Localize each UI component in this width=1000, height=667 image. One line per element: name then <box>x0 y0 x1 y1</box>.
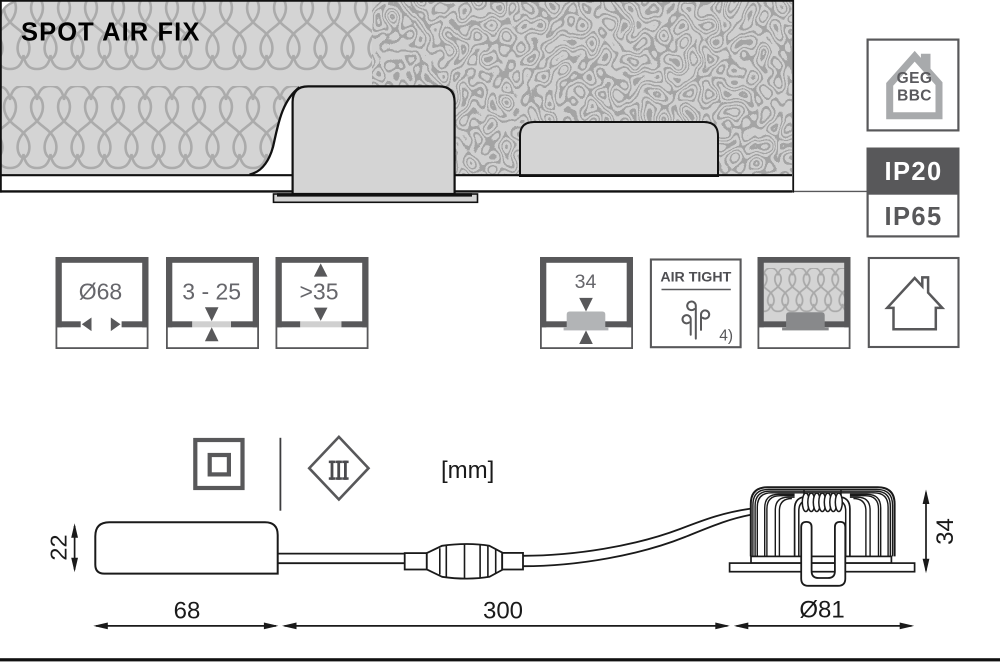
svg-text:SPOT AIR FIX: SPOT AIR FIX <box>21 19 200 47</box>
svg-text:BBC: BBC <box>897 87 932 104</box>
svg-text:300: 300 <box>483 598 523 625</box>
svg-text:3 - 25: 3 - 25 <box>182 279 241 305</box>
svg-text:4): 4) <box>719 327 733 344</box>
svg-text:GEG: GEG <box>897 70 933 87</box>
svg-text:68: 68 <box>174 598 201 625</box>
svg-text:Ø68: Ø68 <box>79 279 122 305</box>
svg-text:34: 34 <box>932 518 959 545</box>
svg-text:AIR TIGHT: AIR TIGHT <box>660 270 731 286</box>
svg-text:IP65: IP65 <box>884 203 942 231</box>
svg-text:34: 34 <box>575 271 597 293</box>
svg-text:Ø81: Ø81 <box>799 597 844 624</box>
svg-text:>35: >35 <box>299 279 338 305</box>
svg-text:[mm]: [mm] <box>441 457 494 484</box>
svg-text:IP20: IP20 <box>884 158 942 186</box>
svg-text:22: 22 <box>46 534 72 560</box>
